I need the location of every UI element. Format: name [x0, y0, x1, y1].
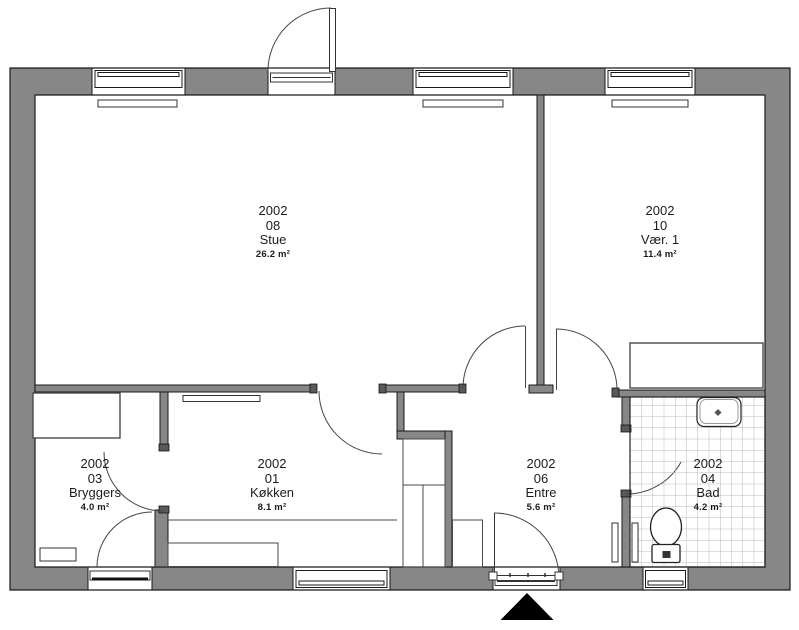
radiator-bryggers	[40, 548, 76, 561]
room-label-bryggers: 2002 03 Bryggers 4.0 m²	[69, 457, 121, 515]
wardrobe-vaer1	[630, 343, 763, 388]
room-label-entre: 2002 06 Entre 5.6 m²	[525, 457, 556, 515]
window-koekken-icon	[296, 571, 387, 588]
room-area: 26.2 m²	[256, 248, 290, 263]
sink-icon	[697, 398, 741, 427]
cabinet-entre	[453, 520, 483, 567]
room-label-stue: 2002 08 Stue 26.2 m²	[256, 204, 290, 262]
room-building: 2002	[525, 457, 556, 472]
radiator-koekken	[183, 396, 260, 402]
door-jamb-caps	[159, 384, 631, 513]
room-area: 4.0 m²	[69, 501, 121, 516]
window-vaer1-icon	[608, 71, 692, 88]
window-bad-icon	[646, 571, 686, 588]
kitchen-cabinets	[168, 439, 483, 567]
room-building: 2002	[69, 457, 121, 472]
room-label-koekken: 2002 01 Køkken 8.1 m²	[250, 457, 294, 515]
room-building: 2002	[250, 457, 294, 472]
room-name: Bad	[694, 486, 723, 501]
door-entre-vaer1-icon	[556, 329, 617, 390]
room-label-vaer1: 2002 10 Vær. 1 11.4 m²	[641, 204, 679, 262]
room-area: 11.4 m²	[641, 248, 679, 263]
floor-plan: 2002 08 Stue 26.2 m² 2002 10 Vær. 1 11.4…	[0, 0, 799, 630]
entrance-arrow-icon	[501, 593, 554, 620]
room-name: Bryggers	[69, 486, 121, 501]
room-number: 04	[694, 472, 723, 487]
room-name: Entre	[525, 486, 556, 501]
radiator-vaer1	[612, 100, 688, 107]
radiator-stue-right	[423, 100, 503, 107]
room-name: Køkken	[250, 486, 294, 501]
room-name: Vær. 1	[641, 233, 679, 248]
door-stue-koekken-icon	[319, 391, 382, 454]
room-number: 06	[525, 472, 556, 487]
room-label-bad: 2002 04 Bad 4.2 m²	[694, 457, 723, 515]
room-name: Stue	[256, 233, 290, 248]
counter-bryggers	[33, 393, 120, 438]
toilet-icon	[651, 508, 682, 563]
windows	[95, 71, 692, 588]
window-stue-right-icon	[416, 71, 510, 88]
radiator-stue-left	[98, 100, 177, 107]
room-number: 01	[250, 472, 294, 487]
room-building: 2002	[641, 204, 679, 219]
room-area: 4.2 m²	[694, 501, 723, 516]
window-stue-left-icon	[95, 71, 182, 88]
room-number: 03	[69, 472, 121, 487]
radiator-entre	[612, 523, 618, 562]
radiators	[40, 100, 688, 562]
room-number: 08	[256, 219, 290, 234]
room-number: 10	[641, 219, 679, 234]
radiator-bad	[632, 523, 638, 562]
floor-plan-drawing	[0, 0, 799, 630]
opening-jambs	[88, 68, 695, 590]
room-area: 8.1 m²	[250, 501, 294, 516]
door-entre-stue-icon	[463, 326, 526, 388]
interior-doors	[104, 326, 681, 511]
room-building: 2002	[694, 457, 723, 472]
wall-openings	[88, 69, 695, 590]
room-building: 2002	[256, 204, 290, 219]
room-area: 5.6 m²	[525, 501, 556, 516]
